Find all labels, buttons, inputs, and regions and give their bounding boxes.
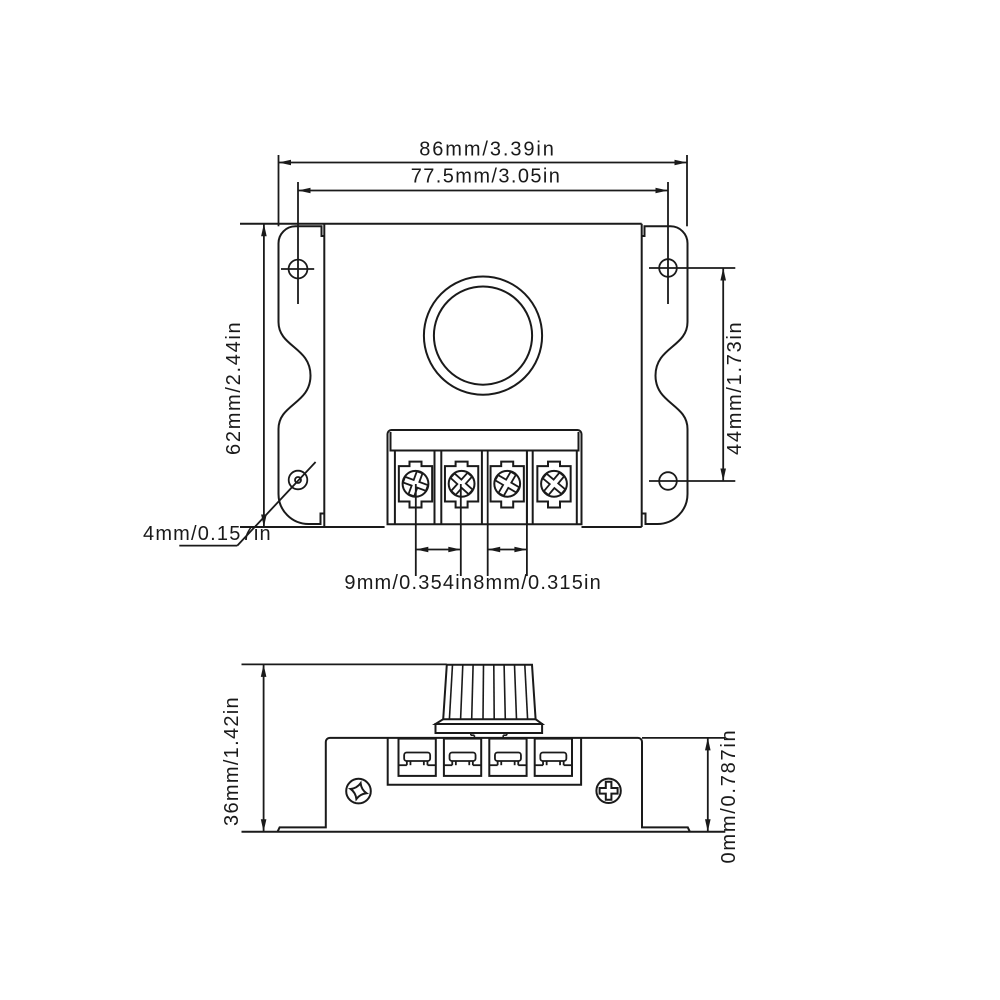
svg-text:62mm/2.44in: 62mm/2.44in bbox=[223, 321, 245, 455]
svg-text:36mm/1.42in: 36mm/1.42in bbox=[221, 696, 243, 826]
svg-text:44mm/1.73in: 44mm/1.73in bbox=[724, 321, 746, 455]
svg-text:77.5mm/3.05in: 77.5mm/3.05in bbox=[411, 166, 562, 188]
svg-text:86mm/3.39in: 86mm/3.39in bbox=[419, 139, 556, 161]
svg-text:9mm/0.354in8mm/0.315in: 9mm/0.354in8mm/0.315in bbox=[344, 572, 602, 594]
svg-text:4mm/0.157in: 4mm/0.157in bbox=[143, 523, 272, 545]
svg-text:0mm/0.787in: 0mm/0.787in bbox=[718, 729, 740, 864]
